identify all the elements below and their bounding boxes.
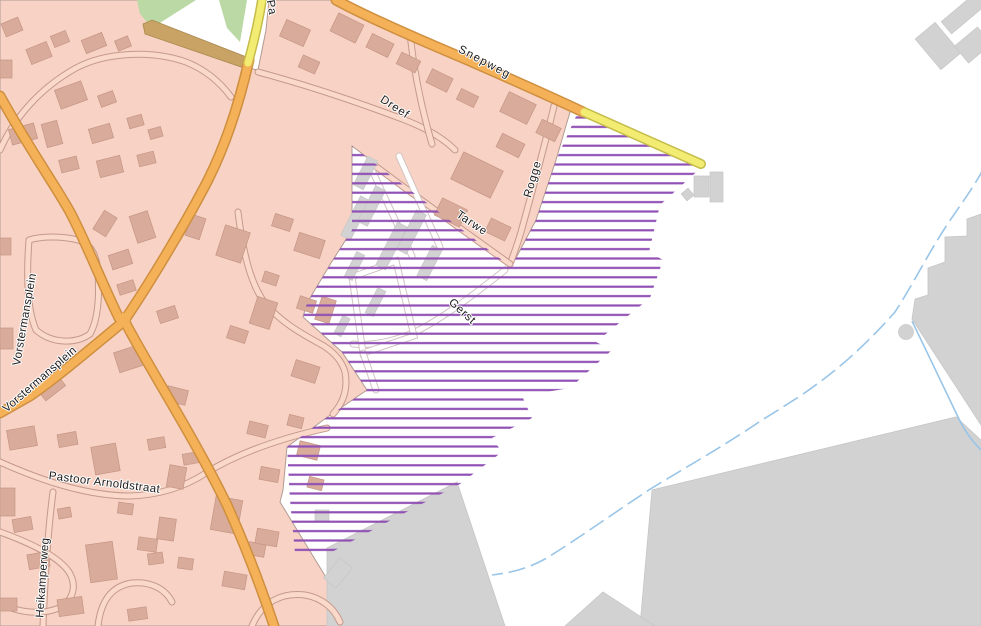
building [85, 541, 117, 582]
building [0, 598, 17, 611]
map-viewport[interactable]: SnepwegPaDreefRoggeTarweGerstVorstermans… [0, 0, 981, 626]
map-canvas: SnepwegPaDreefRoggeTarweGerstVorstermans… [0, 0, 981, 626]
building [259, 466, 280, 482]
industrial-tank [898, 324, 914, 340]
building [177, 557, 193, 570]
road-junction [118, 313, 130, 325]
building [57, 596, 84, 616]
building [57, 507, 72, 519]
building [0, 488, 15, 516]
building [127, 607, 147, 622]
building [0, 328, 13, 349]
building [0, 60, 12, 78]
building-gray [710, 172, 723, 202]
building [166, 465, 187, 490]
building [117, 502, 133, 515]
building [0, 238, 11, 255]
building [12, 516, 33, 532]
building [57, 431, 78, 447]
building-gray [694, 176, 709, 197]
building [157, 517, 177, 541]
building [91, 443, 120, 475]
building [137, 537, 158, 553]
building [147, 552, 163, 565]
